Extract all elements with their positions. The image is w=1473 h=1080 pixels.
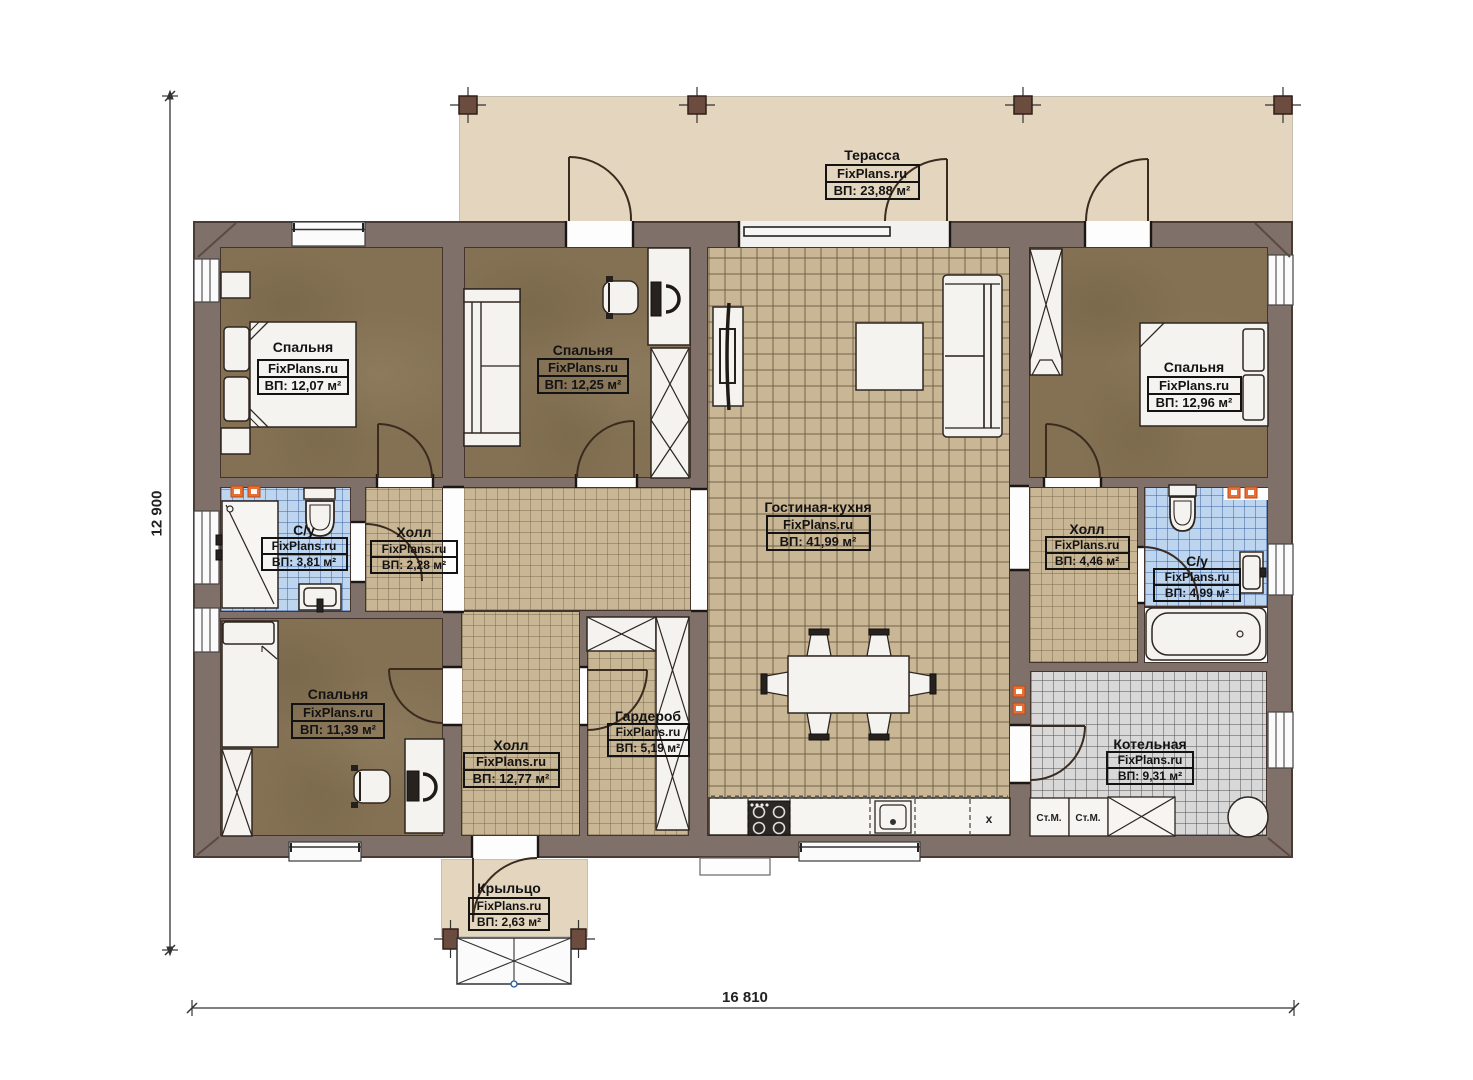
svg-text:Ст.М.: Ст.М. [1075,813,1100,824]
svg-text:x: x [986,812,993,826]
svg-text:Ст.М.: Ст.М. [1036,813,1061,824]
